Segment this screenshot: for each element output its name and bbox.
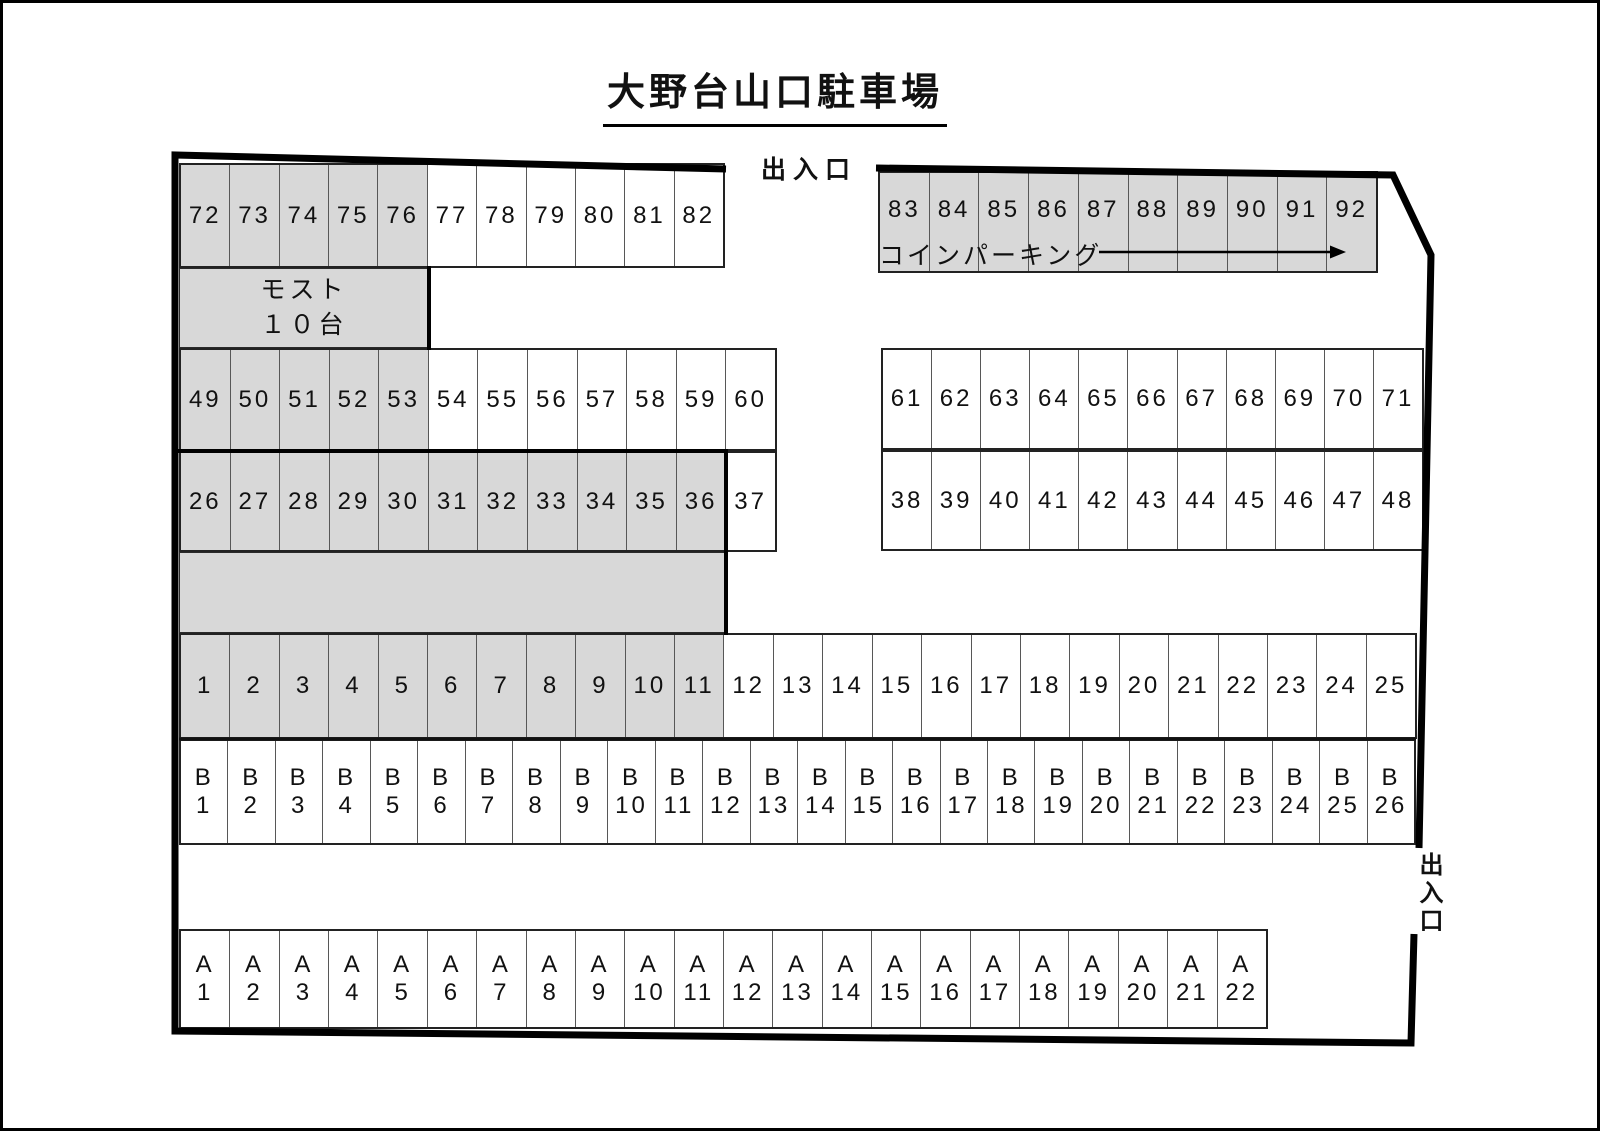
parking-space-52: 52 [329,350,379,449]
parking-space-B1: B 1 [181,741,227,843]
parking-space-37: 37 [725,453,775,550]
parking-space-76: 76 [377,165,426,266]
parking-space-59: 59 [676,350,726,449]
parking-space-91: 91 [1277,173,1327,271]
parking-space-40: 40 [980,452,1029,549]
parking-space-B24: B 24 [1272,741,1319,843]
parking-space-5: 5 [378,635,427,737]
parking-space-12: 12 [723,635,772,737]
parking-space-A20: A 20 [1118,931,1167,1027]
parking-space-A6: A 6 [427,931,476,1027]
parking-space-B8: B 8 [512,741,559,843]
parking-space-B23: B 23 [1224,741,1271,843]
parking-space-89: 89 [1177,173,1227,271]
parking-space-7: 7 [476,635,525,737]
parking-space-A21: A 21 [1167,931,1216,1027]
spaces-72-82: 7273747576777879808182 [179,163,725,268]
parking-space-A12: A 12 [723,931,772,1027]
parking-space-A8: A 8 [526,931,575,1027]
parking-space-68: 68 [1226,350,1275,448]
spaces-26-37: 262728293031323334353637 [179,451,777,552]
parking-space-24: 24 [1316,635,1365,737]
parking-space-B15: B 15 [845,741,892,843]
parking-space-16: 16 [921,635,970,737]
parking-space-9: 9 [575,635,624,737]
parking-space-B14: B 14 [797,741,844,843]
parking-space-22: 22 [1218,635,1267,737]
parking-space-B9: B 9 [560,741,607,843]
parking-space-28: 28 [279,453,329,550]
parking-space-A22: A 22 [1217,931,1266,1027]
parking-space-30: 30 [378,453,428,550]
parking-space-39: 39 [931,452,980,549]
parking-space-43: 43 [1127,452,1176,549]
parking-space-71: 71 [1373,350,1422,448]
parking-space-23: 23 [1267,635,1316,737]
parking-space-53: 53 [378,350,428,449]
parking-space-25: 25 [1366,635,1415,737]
parking-space-90: 90 [1227,173,1277,271]
parking-space-1: 1 [181,635,229,737]
parking-space-74: 74 [279,165,328,266]
parking-space-58: 58 [626,350,676,449]
parking-space-B18: B 18 [987,741,1034,843]
most-block: モスト １０台 [179,268,429,348]
parking-space-65: 65 [1078,350,1127,448]
parking-space-18: 18 [1020,635,1069,737]
parking-space-B10: B 10 [607,741,654,843]
parking-space-A19: A 19 [1068,931,1117,1027]
parking-space-A1: A 1 [181,931,229,1027]
parking-space-60: 60 [725,350,775,449]
parking-space-72: 72 [181,165,229,266]
parking-space-A3: A 3 [279,931,328,1027]
parking-space-B20: B 20 [1082,741,1129,843]
parking-space-33: 33 [527,453,577,550]
parking-space-38: 38 [883,452,931,549]
parking-space-3: 3 [279,635,328,737]
spaces-A1-A22: A 1A 2A 3A 4A 5A 6A 7A 8A 9A 10A 11A 12A… [179,929,1268,1029]
parking-space-54: 54 [428,350,478,449]
parking-space-79: 79 [526,165,575,266]
spaces-61-71: 6162636465666768697071 [881,348,1424,450]
parking-space-6: 6 [427,635,476,737]
spaces-B1-B26: B 1B 2B 3B 4B 5B 6B 7B 8B 9B 10B 11B 12B… [179,739,1416,845]
parking-space-A10: A 10 [624,931,673,1027]
parking-space-56: 56 [527,350,577,449]
parking-space-8: 8 [526,635,575,737]
entrance-label-right: 出入口 [1411,852,1446,942]
parking-space-42: 42 [1078,452,1127,549]
parking-space-B5: B 5 [370,741,417,843]
parking-space-29: 29 [329,453,379,550]
parking-space-10: 10 [625,635,674,737]
parking-space-B19: B 19 [1034,741,1081,843]
parking-space-55: 55 [477,350,527,449]
parking-space-B3: B 3 [275,741,322,843]
parking-space-A5: A 5 [377,931,426,1027]
spaces-38-48: 3839404142434445464748 [881,450,1424,551]
parking-space-A9: A 9 [575,931,624,1027]
parking-space-A7: A 7 [476,931,525,1027]
coin-parking-label: コインパーキング [879,236,1102,272]
parking-space-50: 50 [230,350,280,449]
parking-space-A4: A 4 [328,931,377,1027]
parking-space-A13: A 13 [772,931,821,1027]
parking-space-A14: A 14 [822,931,871,1027]
parking-space-A18: A 18 [1019,931,1068,1027]
parking-space-B21: B 21 [1129,741,1176,843]
parking-space-B17: B 17 [940,741,987,843]
parking-space-17: 17 [971,635,1020,737]
parking-space-35: 35 [626,453,676,550]
spaces-49-60: 495051525354555657585960 [179,348,777,451]
parking-space-B25: B 25 [1319,741,1366,843]
parking-space-B11: B 11 [655,741,702,843]
parking-space-62: 62 [931,350,980,448]
parking-space-A2: A 2 [229,931,278,1027]
parking-space-48: 48 [1373,452,1422,549]
parking-space-63: 63 [980,350,1029,448]
parking-space-26: 26 [181,453,230,550]
parking-space-B12: B 12 [702,741,749,843]
parking-space-27: 27 [230,453,280,550]
parking-space-B7: B 7 [465,741,512,843]
parking-space-B6: B 6 [417,741,464,843]
parking-space-57: 57 [577,350,627,449]
reserved-gray-block [179,552,726,633]
parking-space-B16: B 16 [892,741,939,843]
entrance-label-top: 出入口 [761,150,857,186]
parking-lot-map: 大野台山口駐車場 出入口 出入口 72737475767778798081828… [0,0,1600,1131]
parking-space-75: 75 [328,165,377,266]
parking-space-88: 88 [1128,173,1178,271]
parking-space-B26: B 26 [1367,741,1414,843]
parking-space-92: 92 [1326,173,1376,271]
parking-space-78: 78 [476,165,525,266]
parking-space-45: 45 [1226,452,1275,549]
parking-space-41: 41 [1029,452,1078,549]
parking-space-A11: A 11 [674,931,723,1027]
parking-space-46: 46 [1275,452,1324,549]
parking-space-67: 67 [1177,350,1226,448]
parking-space-B22: B 22 [1177,741,1224,843]
parking-space-13: 13 [773,635,822,737]
spaces-1-25: 1234567891011121314151617181920212223242… [179,633,1417,739]
parking-space-21: 21 [1168,635,1217,737]
parking-space-B2: B 2 [227,741,274,843]
parking-space-69: 69 [1275,350,1324,448]
parking-space-70: 70 [1324,350,1373,448]
parking-space-36: 36 [676,453,726,550]
parking-space-81: 81 [624,165,673,266]
parking-space-49: 49 [181,350,230,449]
parking-space-34: 34 [577,453,627,550]
parking-space-15: 15 [872,635,921,737]
parking-space-31: 31 [428,453,478,550]
parking-space-44: 44 [1177,452,1226,549]
parking-space-A16: A 16 [920,931,969,1027]
parking-space-47: 47 [1324,452,1373,549]
parking-space-B4: B 4 [322,741,369,843]
parking-space-A17: A 17 [970,931,1019,1027]
parking-space-32: 32 [477,453,527,550]
parking-space-19: 19 [1069,635,1118,737]
parking-space-66: 66 [1127,350,1176,448]
parking-space-11: 11 [674,635,723,737]
parking-space-64: 64 [1029,350,1078,448]
parking-space-2: 2 [229,635,278,737]
parking-space-4: 4 [328,635,377,737]
parking-space-73: 73 [229,165,278,266]
parking-space-51: 51 [279,350,329,449]
parking-space-A15: A 15 [871,931,920,1027]
page-title: 大野台山口駐車場 [603,61,947,127]
parking-space-B13: B 13 [750,741,797,843]
parking-space-80: 80 [575,165,624,266]
parking-space-77: 77 [427,165,476,266]
parking-space-14: 14 [822,635,871,737]
parking-space-20: 20 [1119,635,1168,737]
parking-space-61: 61 [883,350,931,448]
parking-space-82: 82 [674,165,723,266]
